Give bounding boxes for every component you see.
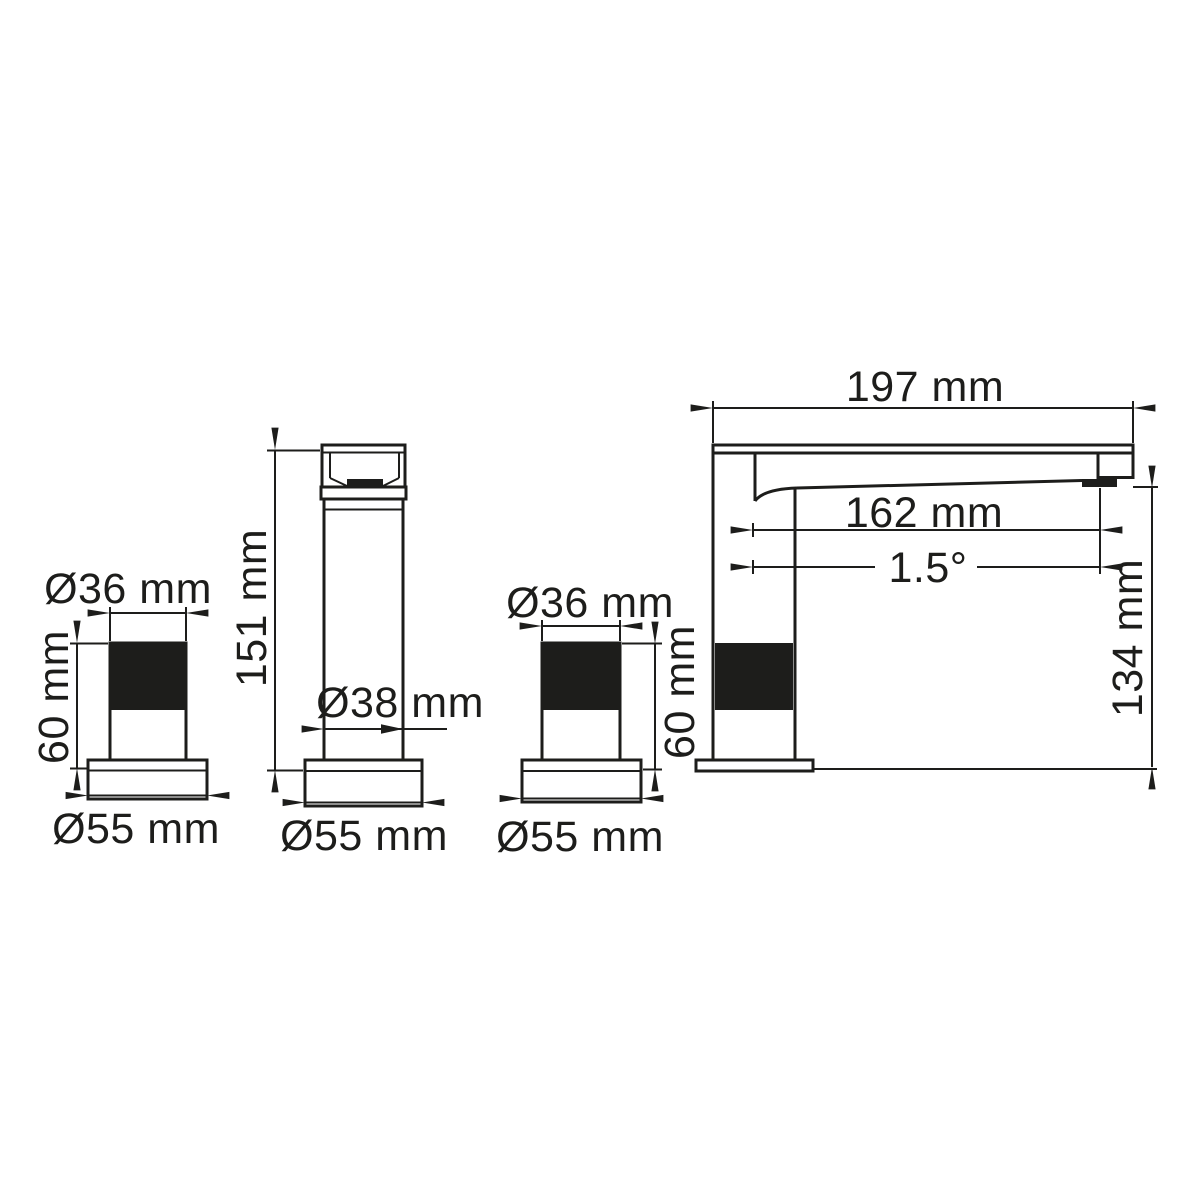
handle-right-base-diameter-label: Ø55 mm: [496, 813, 664, 861]
handle-right-knurl: [542, 643, 620, 710]
dim-faucet-height: 134 mm: [1104, 487, 1158, 767]
faucet-aerator: [1082, 479, 1117, 487]
handle-left-figure: Ø36 mm 60 mm Ø55 mm: [30, 565, 220, 853]
handle-right-top-diameter-label: Ø36 mm: [506, 579, 674, 627]
faucet-spout-curve: [755, 488, 797, 501]
dim-handle-right-height: 60 mm: [622, 625, 704, 769]
dim-handle-left-top-diameter: Ø36 mm: [44, 565, 212, 641]
faucet-total-length-label: 197 mm: [846, 363, 1004, 411]
spout-column-base-diameter-label: Ø55 mm: [280, 812, 448, 860]
technical-drawing: Ø36 mm 60 mm Ø55 mm 151 mm: [0, 0, 1200, 1200]
spout-column-figure: 151 mm Ø38 mm Ø55 mm: [228, 445, 484, 860]
handle-left-height-label: 60 mm: [30, 630, 78, 764]
handle-right-base-flange: [522, 760, 641, 802]
dim-handle-right-base-diameter: Ø55 mm: [496, 799, 664, 862]
dim-handle-left-base-diameter: Ø55 mm: [52, 796, 220, 854]
spout-column-height-label: 151 mm: [228, 529, 276, 687]
faucet-spout-reach-label: 162 mm: [845, 489, 1003, 537]
handle-left-top-diameter-label: Ø36 mm: [44, 565, 212, 613]
dim-handle-left-height: 60 mm: [30, 630, 108, 768]
dim-faucet-spout-angle: 1.5°: [753, 544, 1100, 592]
faucet-top-bar: [713, 445, 1133, 453]
faucet-height-label: 134 mm: [1104, 559, 1152, 717]
spout-column-base-flange: [305, 760, 422, 806]
dim-spout-column-body-diameter: Ø38 mm: [316, 679, 484, 734]
faucet-base-flange: [696, 760, 813, 771]
faucet-spout-tip: [1098, 453, 1133, 478]
dim-spout-column-base-diameter: Ø55 mm: [280, 803, 448, 861]
dim-faucet-total-length: 197 mm: [713, 363, 1133, 443]
handle-left-base-flange: [88, 760, 207, 799]
dim-spout-column-height: 151 mm: [228, 450, 320, 771]
spout-column-body-diameter-label: Ø38 mm: [316, 679, 484, 727]
handle-left-knurl: [110, 643, 186, 710]
dim-handle-right-top-diameter: Ø36 mm: [506, 579, 674, 641]
handle-left-base-diameter-label: Ø55 mm: [52, 805, 220, 853]
faucet-body-knurl: [715, 643, 793, 710]
spout-column-neck-band: [321, 487, 406, 499]
faucet-spout-angle-label: 1.5°: [889, 544, 968, 592]
handle-right-height-label: 60 mm: [656, 625, 704, 759]
faucet-spout-underside: [797, 481, 1082, 489]
handle-right-figure: Ø36 mm 60 mm Ø55 mm: [496, 579, 704, 861]
drawing-canvas: Ø36 mm 60 mm Ø55 mm 151 mm: [0, 0, 1200, 1200]
faucet-figure: 197 mm 162 mm 1.5° 134 mm: [696, 363, 1158, 771]
